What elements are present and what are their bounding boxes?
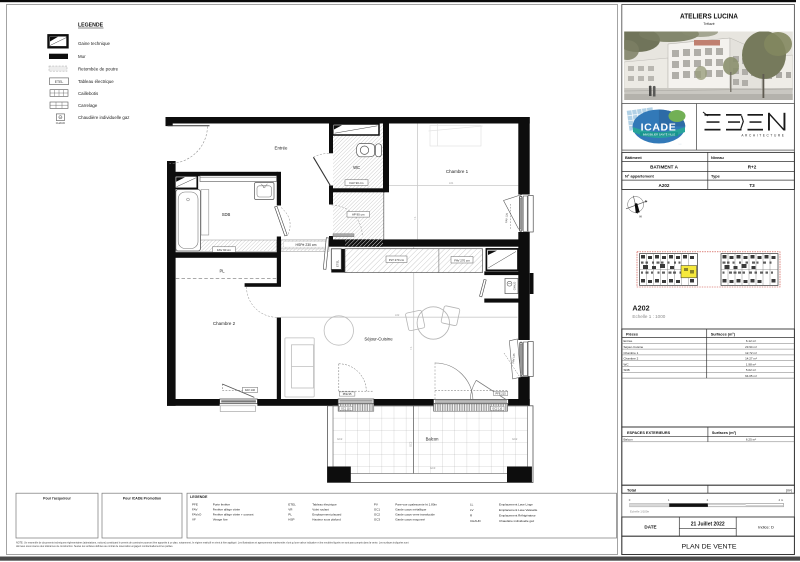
svg-text:FAV: FAV (192, 508, 197, 512)
svg-text:Emplacement Réfrigérateur: Emplacement Réfrigérateur (499, 514, 536, 518)
svg-text:Emplacement placard: Emplacement placard (312, 513, 341, 517)
svg-text:7.1: 7.1 (409, 346, 413, 350)
svg-text:ETEL: ETEL (335, 259, 339, 267)
svg-text:Garde corps verre translucide: Garde corps verre translucide (395, 513, 435, 517)
svg-text:Chaudière individuelle gaz: Chaudière individuelle gaz (78, 115, 130, 120)
svg-text:WC: WC (624, 362, 630, 366)
svg-text:PLAN DE VENTE: PLAN DE VENTE (682, 544, 737, 551)
svg-text:Fenêtre allège vitrée: Fenêtre allège vitrée (213, 508, 241, 512)
svg-text:23.94 m²: 23.94 m² (745, 345, 757, 349)
svg-text:Garde corps métallique: Garde corps métallique (395, 508, 426, 512)
svg-text:FAV 90 cm: FAV 90 cm (217, 248, 232, 252)
svg-text:Pièces: Pièces (626, 332, 638, 336)
svg-text:Balcon: Balcon (426, 437, 439, 442)
svg-text:L01: L01 (449, 181, 454, 185)
svg-text:GC2: GC2 (337, 437, 343, 441)
svg-text:PFE: PFE (192, 503, 198, 507)
svg-text:R+2: R+2 (748, 165, 757, 170)
svg-text:64.05 m²: 64.05 m² (745, 374, 757, 378)
svg-text:FAV 125: FAV 125 (504, 212, 509, 223)
svg-text:Porte fenêtre: Porte fenêtre (213, 503, 231, 507)
svg-text:Emplacement Lave Linge: Emplacement Lave Linge (499, 503, 533, 507)
svg-text:N: N (640, 215, 642, 219)
svg-text:ETEL: ETEL (288, 503, 296, 507)
svg-text:ETEL: ETEL (55, 80, 64, 84)
svg-text:Pour l'acquéreur: Pour l'acquéreur (43, 497, 71, 501)
svg-text:PL: PL (288, 513, 292, 517)
svg-text:Garde corps maçonné: Garde corps maçonné (395, 518, 425, 522)
svg-text:Entrée: Entrée (624, 339, 633, 343)
svg-text:Echelle 1/100e: Echelle 1/100e (630, 510, 650, 514)
svg-text:6.25 m²: 6.25 m² (746, 438, 756, 442)
svg-text:Caillebotis: Caillebotis (78, 91, 99, 96)
svg-text:HSP: HSP (288, 518, 294, 522)
svg-text:ESPACES EXTERIEURS: ESPACES EXTERIEURS (627, 431, 671, 435)
svg-text:Pour ICADE Promotion: Pour ICADE Promotion (123, 497, 161, 501)
svg-text:PLT 270 cm: PLT 270 cm (389, 258, 405, 262)
svg-text:1.98 m²: 1.98 m² (746, 362, 756, 366)
svg-text:Carrelage: Carrelage (78, 103, 98, 108)
svg-text:Type: Type (711, 173, 721, 178)
svg-text:ATELIERS LUCINA: ATELIERS LUCINA (680, 14, 738, 21)
svg-text:Chambre 2: Chambre 2 (624, 357, 639, 361)
svg-text:Retombée de poutre: Retombée de poutre (78, 67, 119, 72)
svg-text:CHAUD: CHAUD (56, 121, 65, 125)
svg-text:GC2 110: GC2 110 (341, 408, 351, 411)
svg-text:Echelle 1 : 1000: Echelle 1 : 1000 (632, 314, 665, 319)
svg-text:Hauteur sous plafond: Hauteur sous plafond (312, 518, 341, 522)
svg-text:Chambre 2: Chambre 2 (213, 321, 236, 326)
svg-text:14.27 m²: 14.27 m² (745, 357, 757, 361)
svg-text:Séjour-Cuisine: Séjour-Cuisine (364, 337, 393, 342)
svg-text:N° appartement: N° appartement (625, 173, 655, 178)
svg-text:Tableau électrique: Tableau électrique (312, 503, 337, 507)
svg-text:WC: WC (353, 165, 360, 170)
svg-text:Surfaces (m²): Surfaces (m²) (712, 431, 737, 435)
svg-text:A202: A202 (632, 304, 649, 313)
svg-text:Gaine technique: Gaine technique (78, 41, 111, 46)
svg-text:CHAUD: CHAUD (513, 281, 516, 290)
svg-text:ARCHITECTURE: ARCHITECTURE (741, 134, 785, 138)
svg-text:GC3: GC3 (374, 518, 381, 522)
svg-text:Indice: D: Indice: D (758, 525, 774, 530)
svg-text:Séjour-Cuisine: Séjour-Cuisine (624, 345, 644, 349)
svg-text:Bâtiment: Bâtiment (625, 155, 642, 160)
svg-text:VF: VF (192, 518, 196, 522)
svg-text:LEGENDE: LEGENDE (190, 495, 208, 499)
svg-text:FAV 140: FAV 140 (245, 388, 256, 392)
svg-text:Chambre 1: Chambre 1 (446, 169, 469, 174)
svg-text:Entrée: Entrée (275, 146, 288, 151)
svg-text:PFE 215: PFE 215 (496, 392, 507, 396)
svg-text:GC3: GC3 (430, 466, 436, 470)
svg-text:7.1: 7.1 (413, 216, 417, 220)
svg-text:Trélazé: Trélazé (703, 22, 714, 26)
svg-text:Balcon: Balcon (624, 438, 634, 442)
svg-text:SDB: SDB (624, 368, 630, 372)
svg-text:◦◦◦: ◦◦◦ (678, 142, 681, 146)
svg-text:CHAUD: CHAUD (470, 519, 482, 523)
svg-text:BATIMENT A: BATIMENT A (650, 165, 678, 170)
svg-text:5.02 m²: 5.02 m² (746, 368, 756, 372)
svg-text:Total: Total (627, 487, 636, 492)
svg-text:LL: LL (470, 503, 474, 507)
svg-text:Tableau électrique: Tableau électrique (78, 79, 114, 84)
svg-text:T3: T3 (749, 183, 755, 188)
svg-text:GC1: GC1 (374, 508, 381, 512)
svg-text:Fenêtre allège vitrée + ouvran: Fenêtre allège vitrée + ouvrant (213, 513, 254, 517)
svg-text:Surfaces (m²): Surfaces (m²) (711, 332, 736, 336)
svg-text:Mur: Mur (78, 54, 86, 59)
svg-text:A202: A202 (659, 183, 670, 188)
svg-text:DATE: DATE (644, 525, 656, 530)
svg-text:AP 90 cm: AP 90 cm (352, 213, 365, 217)
svg-text:6.12 m²: 6.12 m² (746, 339, 756, 343)
svg-text:Volet roulant: Volet roulant (312, 508, 329, 512)
svg-text:ICADE: ICADE (641, 122, 677, 134)
svg-text:SDB: SDB (222, 212, 231, 217)
svg-text:PV: PV (374, 503, 378, 507)
svg-text:4 m: 4 m (779, 498, 784, 502)
svg-text:LEGENDE: LEGENDE (78, 23, 104, 29)
svg-text:FAV 90 cm: FAV 90 cm (350, 181, 365, 185)
svg-text:L02: L02 (395, 313, 400, 317)
svg-text:Chambre 1: Chambre 1 (624, 351, 639, 355)
svg-text:GC2: GC2 (409, 441, 413, 447)
svg-text:PL: PL (219, 269, 225, 274)
svg-text:12.72 m²: 12.72 m² (745, 351, 757, 355)
svg-text:21 Juillet 2022: 21 Juillet 2022 (691, 522, 725, 528)
svg-text:Vitrage fixe: Vitrage fixe (213, 518, 228, 522)
svg-text:GC2: GC2 (374, 513, 381, 517)
svg-text:Niveau: Niveau (711, 155, 724, 160)
svg-text:FAV 270 cm: FAV 270 cm (454, 258, 470, 262)
svg-text:(m²): (m²) (786, 488, 792, 492)
svg-text:Emplacement Lave Vaisselle: Emplacement Lave Vaisselle (499, 508, 538, 512)
svg-text:PFE 95: PFE 95 (343, 392, 352, 396)
svg-text:HSPé 230 cm: HSPé 230 cm (296, 243, 317, 247)
svg-text:Chaudière individuelle gaz: Chaudière individuelle gaz (499, 519, 535, 523)
svg-text:Pare-vue opalescente ht 1.80m: Pare-vue opalescente ht 1.80m (395, 503, 437, 507)
svg-text:LV: LV (470, 508, 473, 512)
svg-text:données sous réserve des tolér: données sous réserve des tolérances de c… (16, 545, 173, 548)
svg-text:GC2 110: GC2 110 (492, 408, 502, 411)
svg-text:GC2: GC2 (512, 437, 518, 441)
svg-text:FAVxO: FAVxO (192, 513, 202, 517)
